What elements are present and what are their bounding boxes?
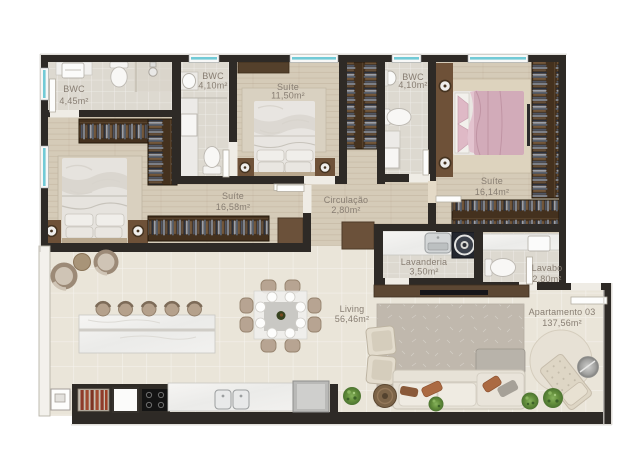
svg-text:BWC: BWC (63, 84, 85, 94)
svg-text:Suíte: Suíte (481, 176, 503, 186)
svg-text:4,10m²: 4,10m² (198, 81, 227, 91)
svg-text:3,50m²: 3,50m² (409, 267, 438, 277)
svg-text:2,80m²: 2,80m² (331, 205, 360, 215)
svg-text:11,50m²: 11,50m² (271, 91, 305, 101)
svg-text:137,56m²: 137,56m² (542, 318, 582, 328)
svg-text:Lavabo: Lavabo (532, 263, 563, 273)
svg-text:16,58m²: 16,58m² (216, 202, 250, 212)
svg-text:Suíte: Suíte (222, 191, 244, 201)
svg-text:BWC: BWC (202, 71, 224, 81)
svg-text:4,10m²: 4,10m² (398, 80, 427, 90)
svg-text:16,14m²: 16,14m² (475, 187, 509, 197)
svg-text:4,45m²: 4,45m² (59, 96, 88, 106)
svg-text:56,46m²: 56,46m² (335, 314, 369, 324)
svg-text:2,80m²: 2,80m² (532, 274, 561, 284)
svg-text:Lavanderia: Lavanderia (401, 257, 448, 267)
svg-text:Living: Living (340, 304, 365, 314)
svg-text:Apartamento 03: Apartamento 03 (529, 307, 596, 317)
svg-text:Circulação: Circulação (324, 195, 369, 205)
